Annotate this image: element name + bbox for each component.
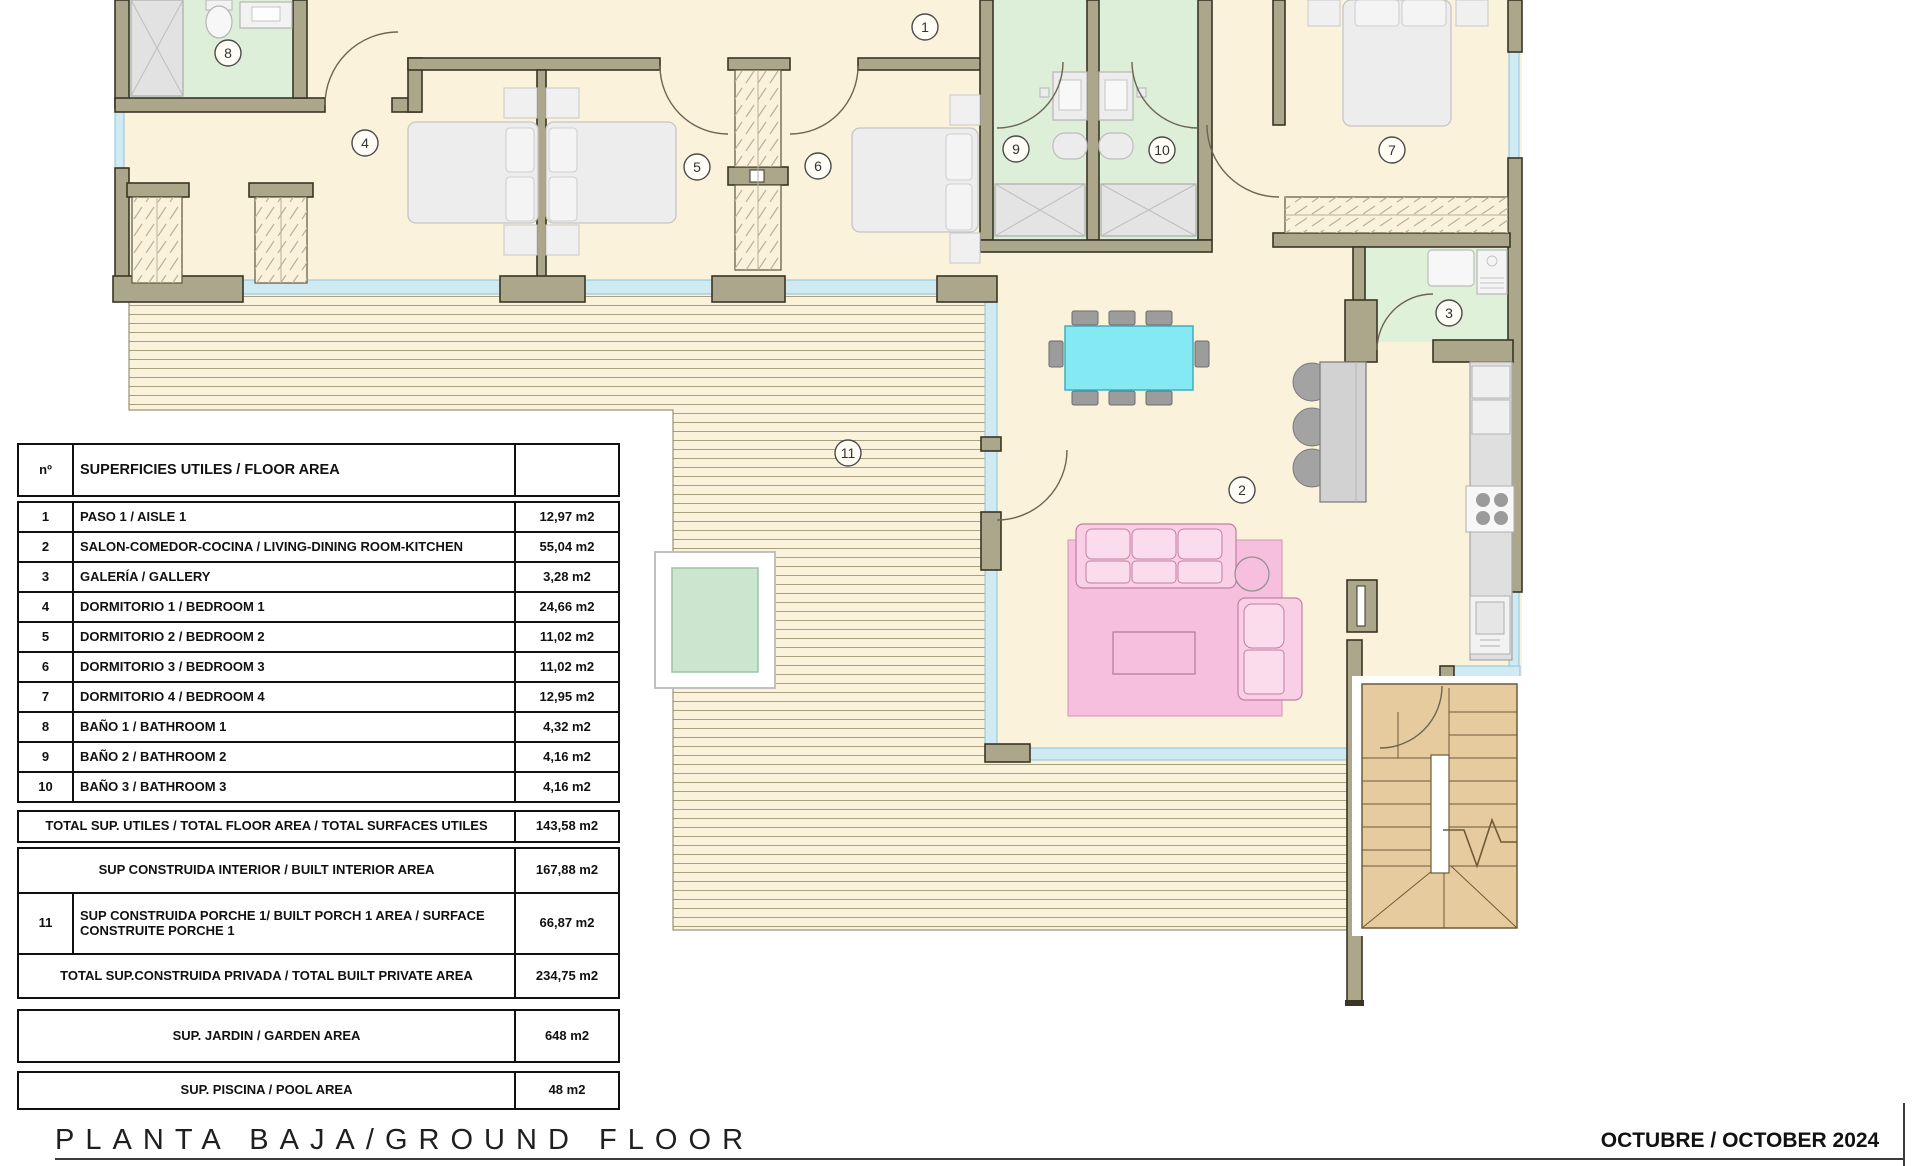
- row-label: DORMITORIO 4 / BEDROOM 4: [74, 683, 514, 711]
- floor-plan-sheet: 1234567891011 nºSUPERFICIES UTILES / FLO…: [0, 0, 1920, 1166]
- row-number: 2: [19, 533, 74, 561]
- row-value: 3,28 m2: [514, 563, 618, 591]
- row-number: 10: [19, 773, 74, 801]
- svg-text:10: 10: [1154, 142, 1170, 158]
- sheet-right-rule: [1903, 1103, 1905, 1166]
- row-value: 12,95 m2: [514, 683, 618, 711]
- svg-text:8: 8: [224, 45, 232, 61]
- room-marker: 2: [1229, 477, 1255, 503]
- plan-date: OCTUBRE / OCTOBER 2024: [1590, 1129, 1890, 1153]
- table-row: 1PASO 1 / AISLE 112,97 m2: [17, 501, 620, 533]
- row-label: BAÑO 3 / BATHROOM 3: [74, 773, 514, 801]
- row-label: SUP CONSTRUIDA INTERIOR / BUILT INTERIOR…: [19, 849, 514, 892]
- row-label: SALON-COMEDOR-COCINA / LIVING-DINING ROO…: [74, 533, 514, 561]
- svg-text:11: 11: [841, 445, 856, 461]
- svg-text:5: 5: [693, 159, 701, 175]
- row-label: TOTAL SUP.CONSTRUIDA PRIVADA / TOTAL BUI…: [19, 955, 514, 997]
- row-label: TOTAL SUP. UTILES / TOTAL FLOOR AREA / T…: [19, 812, 514, 841]
- row-value: 648 m2: [514, 1011, 618, 1061]
- pool: [655, 552, 775, 688]
- room-marker: 9: [1003, 136, 1029, 162]
- table-row: SUP CONSTRUIDA INTERIOR / BUILT INTERIOR…: [17, 847, 620, 894]
- row-label: BAÑO 2 / BATHROOM 2: [74, 743, 514, 771]
- table-row: 10BAÑO 3 / BATHROOM 34,16 m2: [17, 771, 620, 803]
- row-label: SUPERFICIES UTILES / FLOOR AREA: [74, 445, 514, 495]
- row-number: 1: [19, 503, 74, 531]
- row-value: 24,66 m2: [514, 593, 618, 621]
- row-value: [514, 445, 618, 495]
- row-value: 55,04 m2: [514, 533, 618, 561]
- room-marker: 6: [805, 153, 831, 179]
- row-label: PASO 1 / AISLE 1: [74, 503, 514, 531]
- room-marker: 3: [1436, 300, 1462, 326]
- room-marker: 11: [835, 440, 861, 466]
- sofa-set: [1068, 524, 1302, 716]
- table-row: 9BAÑO 2 / BATHROOM 24,16 m2: [17, 741, 620, 773]
- svg-text:2: 2: [1238, 482, 1246, 498]
- row-label: SUP CONSTRUIDA PORCHE 1/ BUILT PORCH 1 A…: [74, 894, 514, 953]
- table-row: 8BAÑO 1 / BATHROOM 14,32 m2: [17, 711, 620, 743]
- svg-text:9: 9: [1012, 141, 1020, 157]
- table-row: 11SUP CONSTRUIDA PORCHE 1/ BUILT PORCH 1…: [17, 892, 620, 955]
- svg-text:6: 6: [814, 158, 822, 174]
- room-marker: 10: [1149, 137, 1175, 163]
- table-row: 5DORMITORIO 2 / BEDROOM 211,02 m2: [17, 621, 620, 653]
- row-number: 7: [19, 683, 74, 711]
- row-value: 66,87 m2: [514, 894, 618, 953]
- table-row: 2SALON-COMEDOR-COCINA / LIVING-DINING RO…: [17, 531, 620, 563]
- plan-title: PLANTA BAJA/GROUND FLOOR: [55, 1124, 754, 1157]
- row-number: 9: [19, 743, 74, 771]
- row-value: 4,32 m2: [514, 713, 618, 741]
- row-value: 143,58 m2: [514, 812, 618, 841]
- row-label: DORMITORIO 3 / BEDROOM 3: [74, 653, 514, 681]
- room-marker: 4: [352, 130, 378, 156]
- row-value: 11,02 m2: [514, 623, 618, 651]
- table-row: TOTAL SUP. UTILES / TOTAL FLOOR AREA / T…: [17, 810, 620, 843]
- room-marker: 7: [1379, 137, 1405, 163]
- row-value: 11,02 m2: [514, 653, 618, 681]
- row-number: 6: [19, 653, 74, 681]
- row-value: 4,16 m2: [514, 743, 618, 771]
- row-label: BAÑO 1 / BATHROOM 1: [74, 713, 514, 741]
- table-row: 4DORMITORIO 1 / BEDROOM 124,66 m2: [17, 591, 620, 623]
- room-marker: 5: [684, 154, 710, 180]
- row-number: 5: [19, 623, 74, 651]
- row-number: 11: [19, 894, 74, 953]
- svg-text:3: 3: [1445, 305, 1453, 321]
- row-number: 4: [19, 593, 74, 621]
- room-marker: 1: [912, 14, 938, 40]
- table-row: TOTAL SUP.CONSTRUIDA PRIVADA / TOTAL BUI…: [17, 953, 620, 999]
- svg-text:4: 4: [361, 135, 369, 151]
- row-value: 167,88 m2: [514, 849, 618, 892]
- row-label: GALERÍA / GALLERY: [74, 563, 514, 591]
- row-value: 48 m2: [514, 1073, 618, 1108]
- svg-text:1: 1: [921, 19, 929, 35]
- table-row: 3GALERÍA / GALLERY3,28 m2: [17, 561, 620, 593]
- row-value: 234,75 m2: [514, 955, 618, 997]
- table-row: 6DORMITORIO 3 / BEDROOM 311,02 m2: [17, 651, 620, 683]
- table-row: SUP. JARDIN / GARDEN AREA648 m2: [17, 1009, 620, 1063]
- table-row: 7DORMITORIO 4 / BEDROOM 412,95 m2: [17, 681, 620, 713]
- stairs: [1345, 676, 1524, 1006]
- room-marker: 8: [215, 40, 241, 66]
- row-value: 12,97 m2: [514, 503, 618, 531]
- row-number: 3: [19, 563, 74, 591]
- table-row: nºSUPERFICIES UTILES / FLOOR AREA: [17, 443, 620, 497]
- table-row: SUP. PISCINA / POOL AREA48 m2: [17, 1071, 620, 1110]
- row-label: SUP. PISCINA / POOL AREA: [19, 1073, 514, 1108]
- row-number: nº: [19, 445, 74, 495]
- floor-area-table: nºSUPERFICIES UTILES / FLOOR AREA1PASO 1…: [17, 443, 620, 1110]
- row-value: 4,16 m2: [514, 773, 618, 801]
- sheet-bottom-rule: [55, 1158, 1905, 1160]
- row-label: DORMITORIO 2 / BEDROOM 2: [74, 623, 514, 651]
- kitchen-island: [1293, 362, 1366, 502]
- row-number: 8: [19, 713, 74, 741]
- kitchen-counter: [1466, 362, 1514, 660]
- svg-text:7: 7: [1388, 142, 1396, 158]
- row-label: SUP. JARDIN / GARDEN AREA: [19, 1011, 514, 1061]
- row-label: DORMITORIO 1 / BEDROOM 1: [74, 593, 514, 621]
